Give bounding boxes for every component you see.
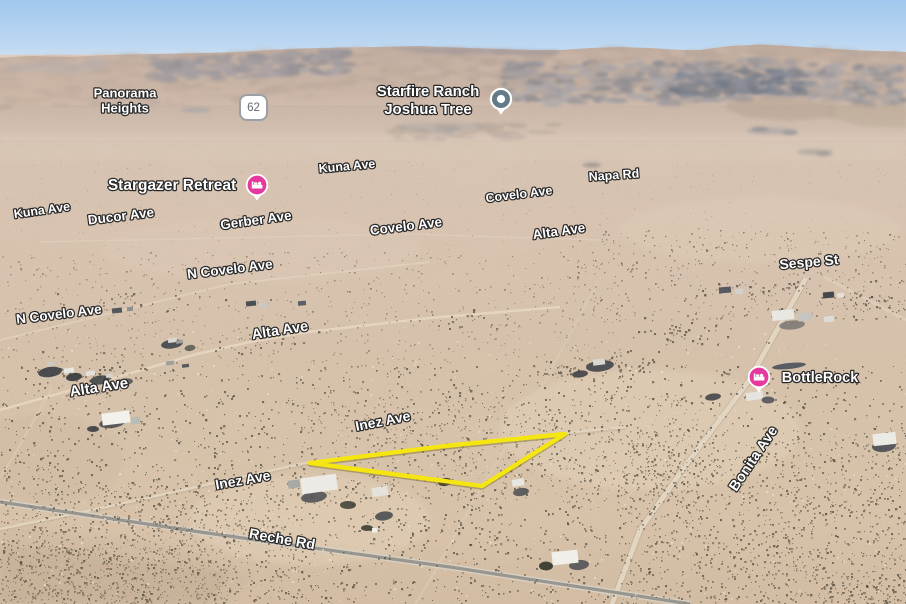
svg-text:Stargazer Retreat: Stargazer Retreat: [108, 177, 236, 194]
svg-text:Joshua Tree: Joshua Tree: [384, 101, 472, 118]
svg-text:Starfire Ranch: Starfire Ranch: [377, 83, 480, 100]
svg-text:Panorama: Panorama: [94, 85, 158, 100]
svg-text:Heights: Heights: [101, 100, 149, 115]
svg-text:BottleRock: BottleRock: [782, 370, 859, 386]
svg-text:62: 62: [247, 102, 260, 114]
